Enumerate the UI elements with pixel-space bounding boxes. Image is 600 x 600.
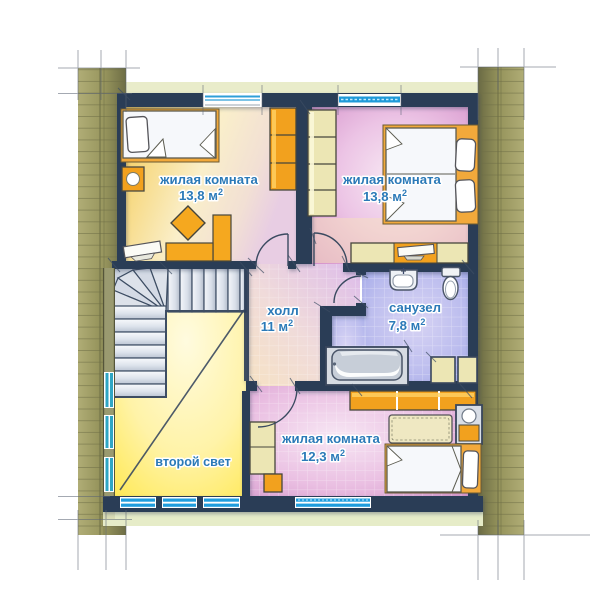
svg-text:холл: холл — [267, 303, 299, 318]
svg-text:13,8 м2: 13,8 м2 — [179, 187, 223, 203]
svg-text:санузел: санузел — [389, 300, 441, 315]
svg-text:жилая комната: жилая комната — [342, 172, 441, 187]
svg-text:второй свет: второй свет — [155, 455, 230, 469]
svg-text:7,8 м2: 7,8 м2 — [389, 317, 426, 333]
svg-text:жилая комната: жилая комната — [159, 172, 258, 187]
svg-text:жилая комната: жилая комната — [281, 431, 380, 446]
svg-text:13,8 м2: 13,8 м2 — [363, 188, 407, 204]
svg-text:12,3 м2: 12,3 м2 — [301, 448, 345, 464]
